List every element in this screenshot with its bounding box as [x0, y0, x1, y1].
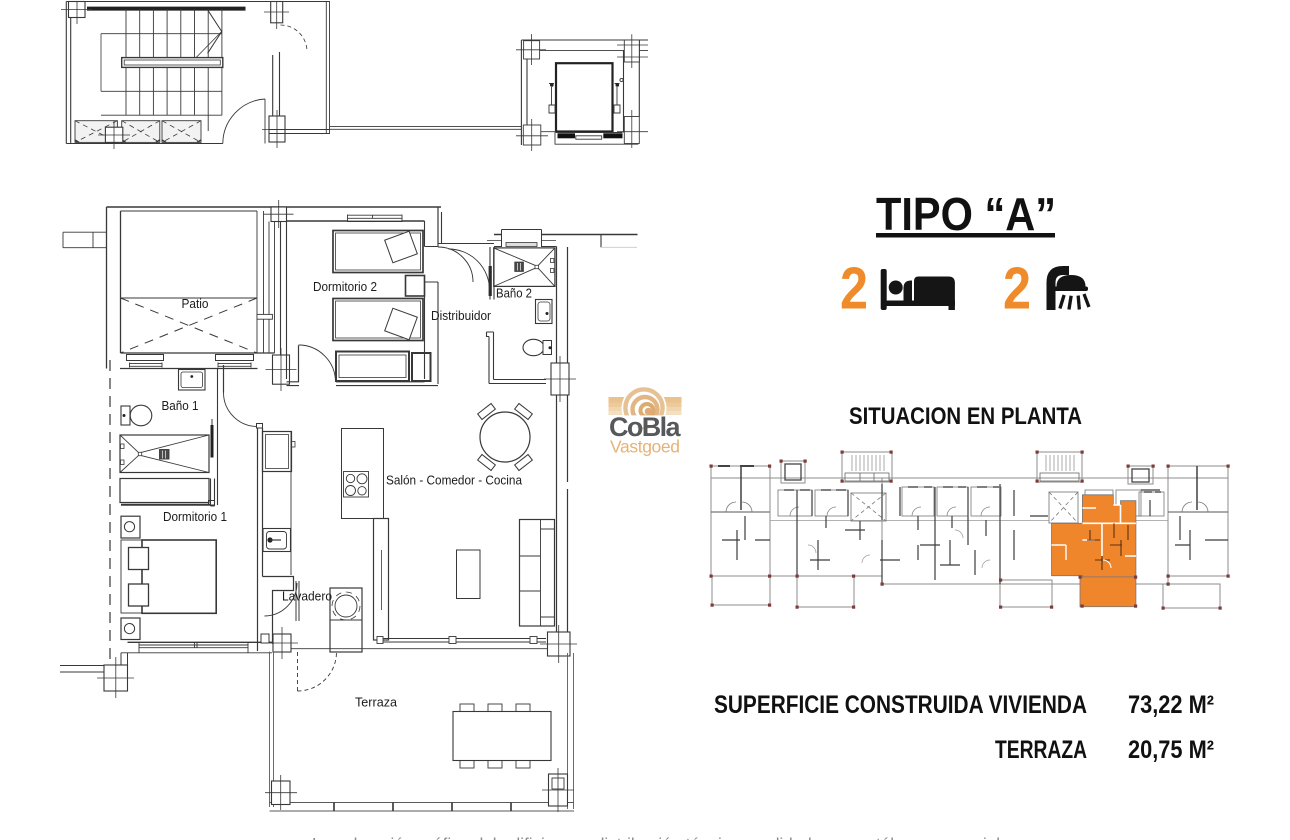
svg-text:Baño 2: Baño 2 [496, 287, 532, 301]
svg-text:Patio: Patio [182, 297, 209, 311]
svg-text:Salón - Comedor - Cocina: Salón - Comedor - Cocina [386, 474, 522, 488]
svg-text:Lavadero: Lavadero [282, 590, 332, 604]
svg-text:Baño 1: Baño 1 [162, 399, 199, 413]
svg-text:2: 2 [840, 256, 868, 322]
svg-text:2: 2 [1003, 256, 1031, 322]
svg-text:La valoración gráfica del edif: La valoración gráfica del edificio y su … [312, 836, 1000, 840]
svg-text:SUPERFICIE CONSTRUIDA VIVIENDA: SUPERFICIE CONSTRUIDA VIVIENDA [714, 691, 1087, 719]
svg-text:Terraza: Terraza [355, 696, 397, 710]
svg-text:Dormitorio 2: Dormitorio 2 [313, 280, 377, 294]
svg-text:TIPO “A”: TIPO “A” [876, 188, 1056, 240]
svg-text:73,22 M²: 73,22 M² [1128, 691, 1214, 719]
svg-text:SITUACION EN PLANTA: SITUACION EN PLANTA [849, 403, 1082, 430]
svg-text:Vastgoed: Vastgoed [610, 437, 680, 457]
svg-text:Distribuidor: Distribuidor [431, 309, 491, 323]
svg-text:Dormitorio 1: Dormitorio 1 [163, 510, 227, 524]
svg-text:TERRAZA: TERRAZA [995, 736, 1087, 764]
svg-text:20,75 M²: 20,75 M² [1128, 736, 1214, 764]
